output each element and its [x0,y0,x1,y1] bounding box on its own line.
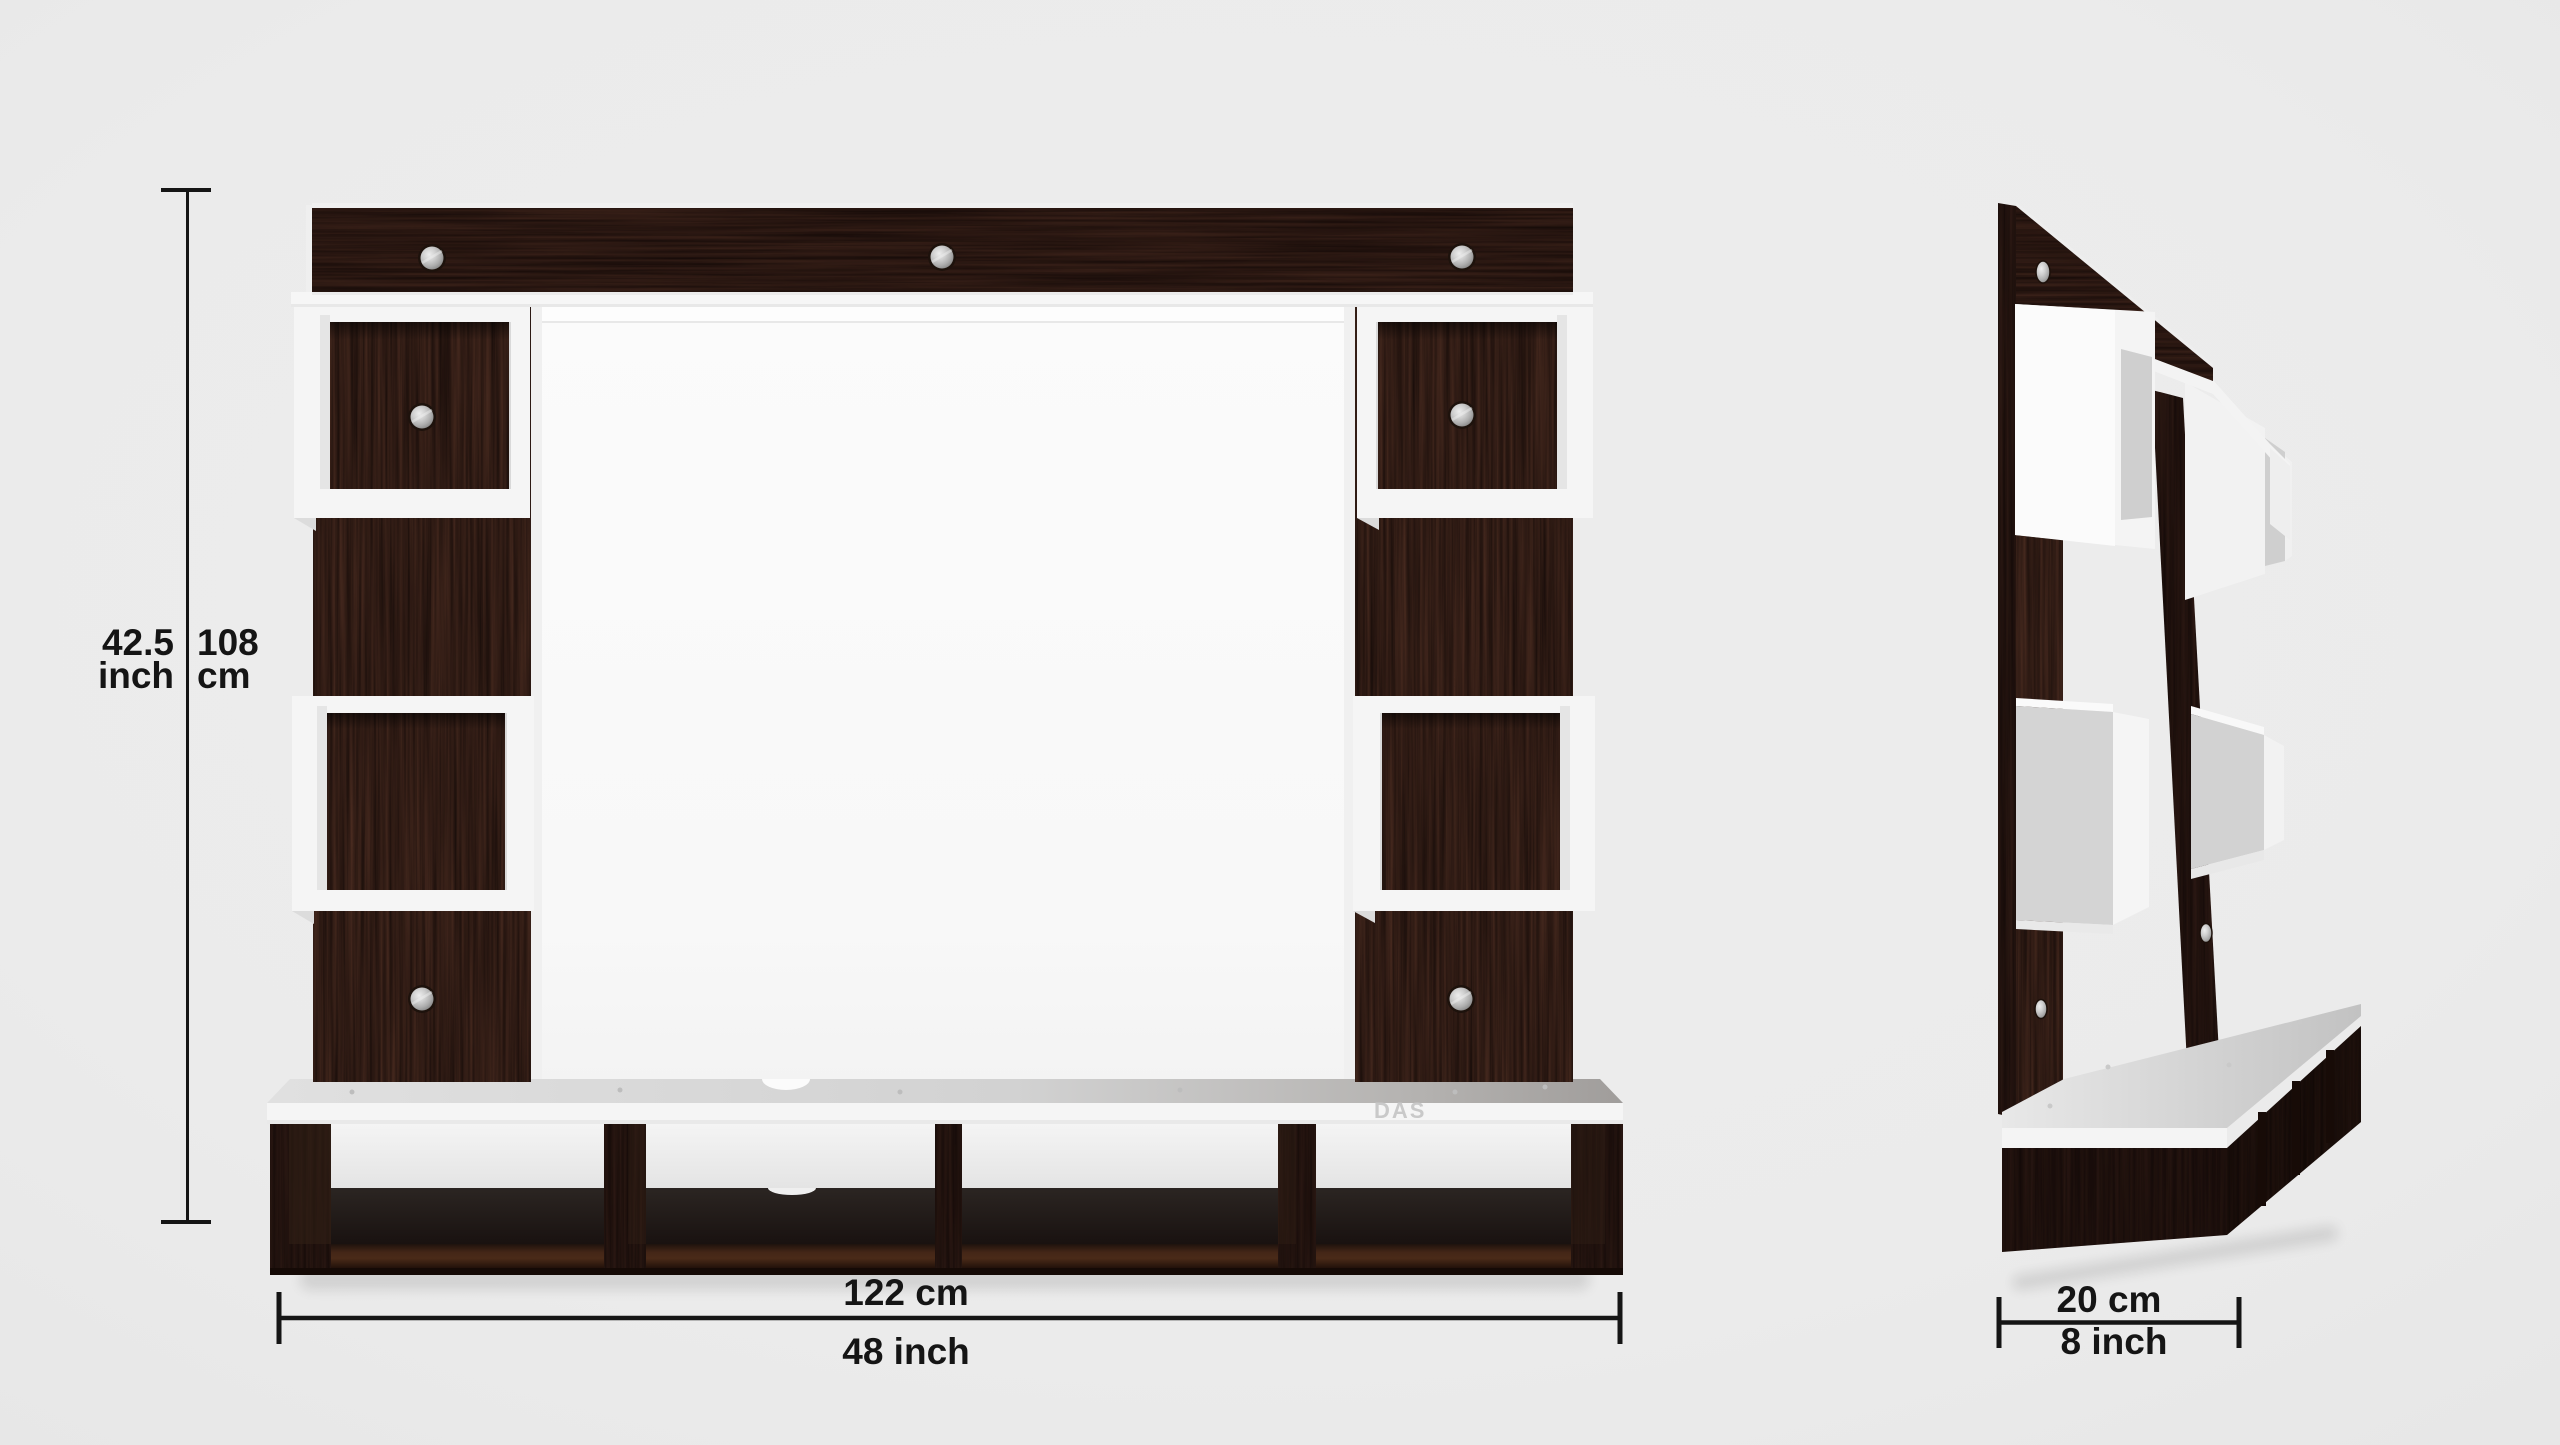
svg-text:122 cm: 122 cm [843,1272,969,1313]
svg-text:inch: inch [98,655,174,696]
svg-text:8 inch: 8 inch [2061,1321,2168,1362]
svg-text:cm: cm [197,655,250,696]
svg-text:48 inch: 48 inch [842,1331,970,1372]
svg-text:DAS: DAS [1374,1098,1426,1123]
svg-text:20 cm: 20 cm [2057,1279,2162,1320]
